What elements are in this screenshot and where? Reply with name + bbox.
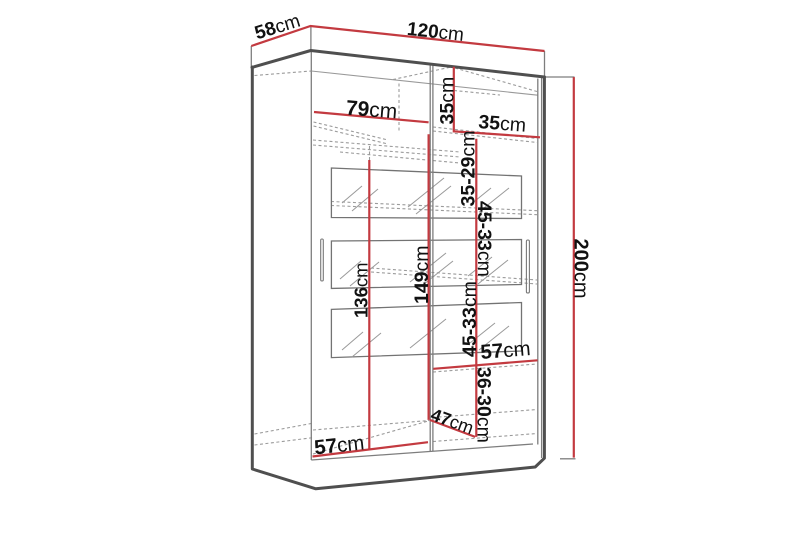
svg-text:45-33cm: 45-33cm [459, 281, 481, 357]
svg-text:35-29cm: 35-29cm [458, 131, 480, 207]
svg-text:136cm: 136cm [350, 262, 371, 318]
svg-text:45-33cm: 45-33cm [473, 201, 495, 277]
svg-text:149cm: 149cm [411, 245, 433, 304]
svg-text:79cm: 79cm [345, 97, 398, 124]
svg-text:35cm: 35cm [478, 111, 527, 137]
svg-text:35cm: 35cm [436, 77, 458, 125]
svg-text:57cm: 57cm [480, 337, 532, 364]
svg-text:200cm: 200cm [570, 239, 592, 299]
svg-text:36-30cm: 36-30cm [473, 367, 495, 443]
